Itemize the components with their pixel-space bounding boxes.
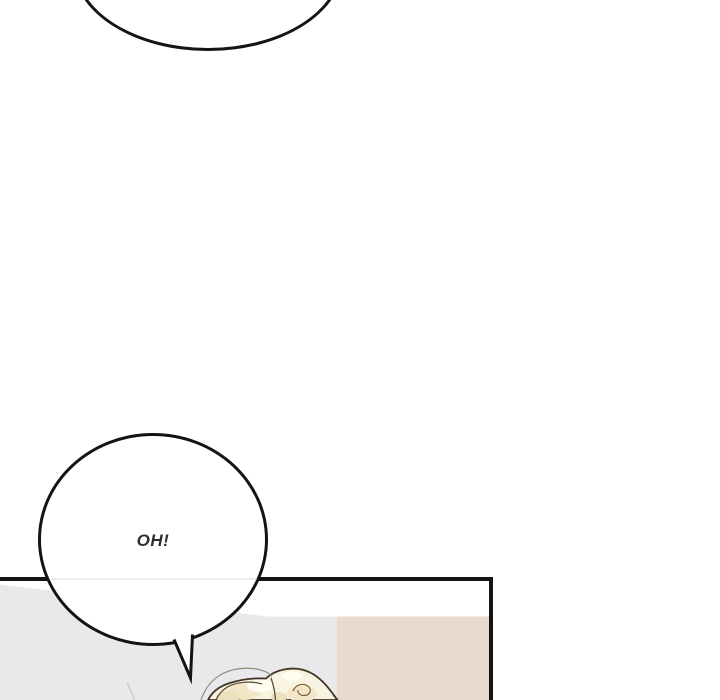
speech-bubble-tail [168,626,198,688]
speech-bubble-oh: OH! [38,433,268,646]
hair-highlight-right [282,672,302,681]
wall-beige [337,617,489,700]
bubble-tail-shape [174,635,193,679]
speech-bubble-top-partial [73,0,343,51]
speech-text: OH! [41,531,265,551]
comic-page: OH! [0,0,720,700]
panel-border-showthrough [41,578,265,580]
